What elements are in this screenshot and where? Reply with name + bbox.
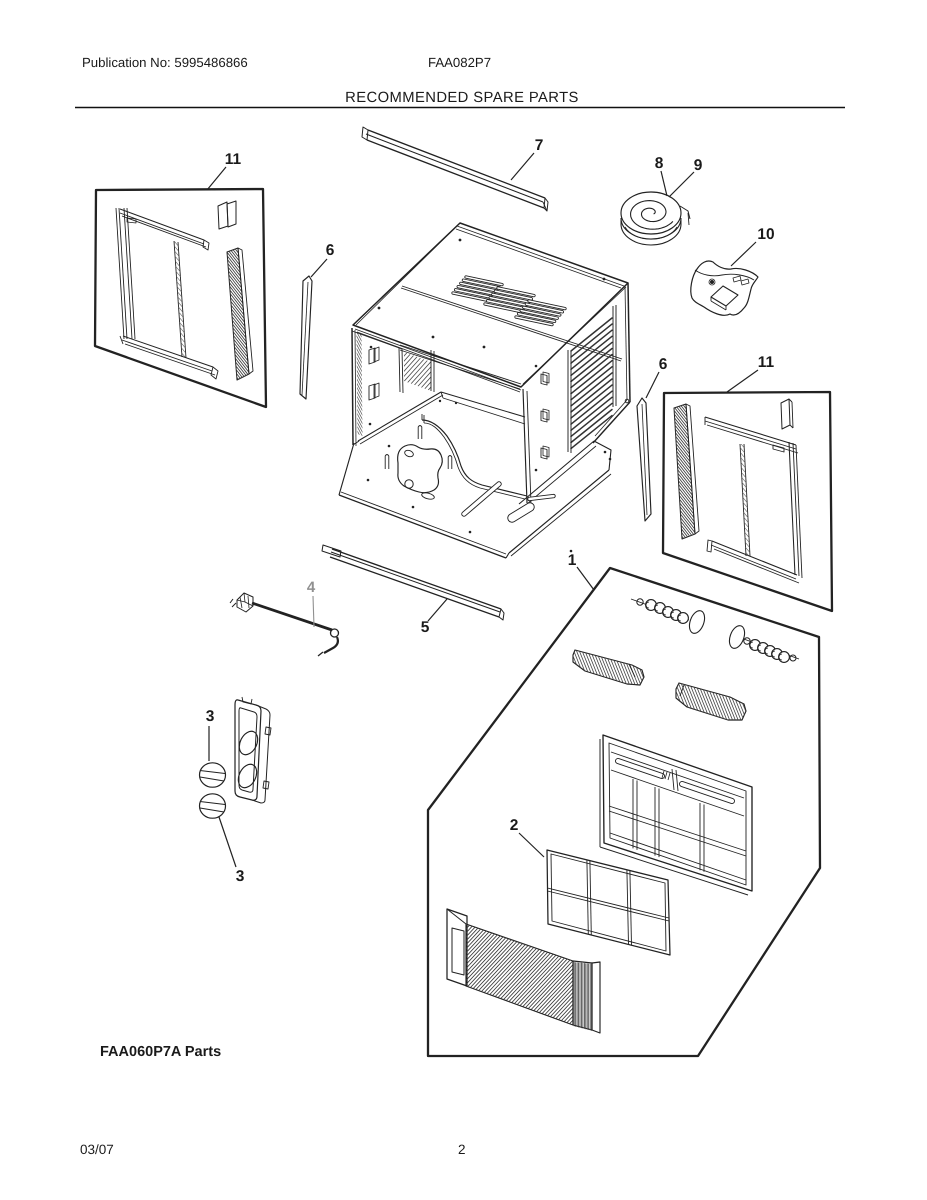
svg-text:FAA060P7A Parts: FAA060P7A Parts xyxy=(100,1044,221,1060)
svg-text:3: 3 xyxy=(236,868,245,885)
svg-text:Publication No: 5995486866: Publication No: 5995486866 xyxy=(82,55,248,70)
svg-text:4: 4 xyxy=(307,579,316,596)
svg-text:11: 11 xyxy=(225,151,242,168)
svg-text:RECOMMENDED SPARE PARTS: RECOMMENDED SPARE PARTS xyxy=(345,90,579,106)
svg-text:FAA082P7: FAA082P7 xyxy=(428,55,491,70)
svg-text:03/07: 03/07 xyxy=(80,1142,114,1157)
svg-text:6: 6 xyxy=(326,242,335,259)
svg-text:5: 5 xyxy=(421,619,430,636)
svg-text:2: 2 xyxy=(510,817,519,834)
svg-text:7: 7 xyxy=(535,137,544,154)
svg-text:6: 6 xyxy=(659,356,668,373)
svg-text:2: 2 xyxy=(458,1142,466,1157)
svg-text:1: 1 xyxy=(568,552,577,569)
svg-text:9: 9 xyxy=(694,157,703,174)
svg-text:3: 3 xyxy=(206,708,215,725)
svg-text:10: 10 xyxy=(757,226,774,243)
svg-text:8: 8 xyxy=(655,155,664,172)
svg-text:11: 11 xyxy=(758,354,775,371)
